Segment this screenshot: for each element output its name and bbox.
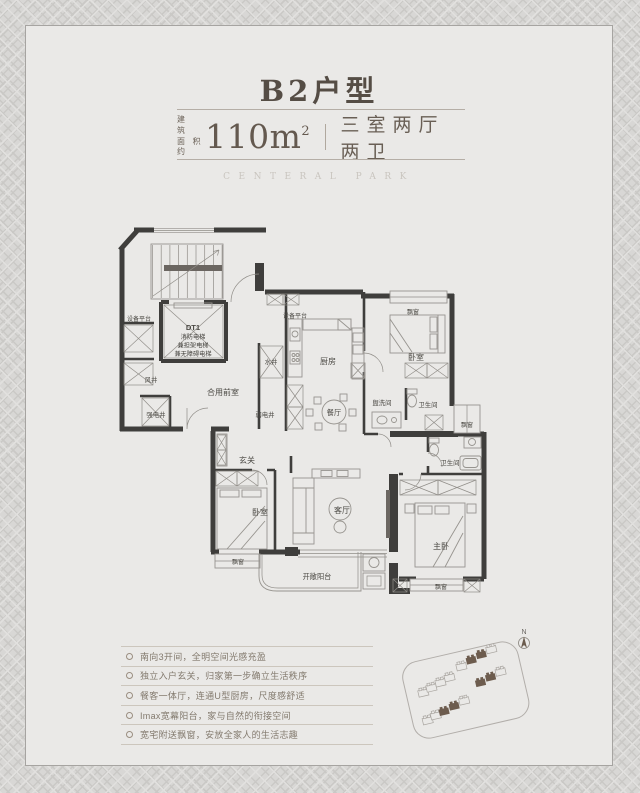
room-label: 飘窗 <box>461 421 473 429</box>
floor-plan-svg: 设备平台 DT1 消防电梯 兼担架电梯 兼无障碍电梯 风井 合用前室 强电井 弱… <box>114 223 516 618</box>
room-label: 卧室 <box>252 507 268 517</box>
room-label: 兼担架电梯 <box>178 342 209 350</box>
feature-item: 宽宅附送飘窗，安放全家人的生活志趣 <box>121 724 373 744</box>
vertical-divider <box>325 124 326 150</box>
bullet-icon <box>126 692 133 699</box>
feature-text: Imax宽幕阳台，家与自然的衔接空间 <box>140 709 291 722</box>
bullet-icon <box>126 653 133 660</box>
project-watermark: CENTERAL PARK <box>26 172 612 182</box>
feature-item: Imax宽幕阳台，家与自然的衔接空间 <box>121 705 373 725</box>
room-label: 餐厅 <box>327 408 341 417</box>
kitchen-counters <box>288 319 365 379</box>
room-label: 卧室 <box>408 352 424 362</box>
room-label: 开敞阳台 <box>303 572 332 581</box>
feature-text: 南向3开间，全明空间光感充盈 <box>140 650 266 663</box>
room-label: 卫生间 <box>418 400 437 409</box>
north-label: N <box>521 629 526 636</box>
bullet-icon <box>126 731 133 738</box>
room-label: 兼无障碍电梯 <box>174 350 211 358</box>
room-label: 飘窗 <box>407 308 419 316</box>
bedroom-top-furniture <box>390 315 445 353</box>
room-label: 强电井 <box>146 410 166 419</box>
master-wall-pier <box>389 474 398 552</box>
flyer-background: B2户型 建 筑 面积约 110m2 三室两厅两卫 CENTERAL PARK <box>0 0 640 793</box>
area-number: 110m <box>205 117 301 156</box>
room-label: 弱电井 <box>255 410 275 419</box>
feature-text: 独立入户玄关，归家第一步确立生活秩序 <box>140 669 307 682</box>
room-label: 主卧 <box>433 541 449 551</box>
divider-line-bottom <box>177 159 465 160</box>
area-label: 建 筑 面积约 <box>177 115 201 158</box>
room-label: 设备平台 <box>283 312 307 320</box>
north-indicator: N <box>519 629 530 649</box>
windows <box>154 228 387 557</box>
site-plan: N <box>393 623 543 748</box>
room-label: 客厅 <box>334 505 350 515</box>
room-label: 飘窗 <box>232 558 244 566</box>
room-label: 风井 <box>145 375 158 384</box>
master-furniture <box>405 503 476 567</box>
room-label: 卫生间 <box>440 458 459 467</box>
staircase <box>151 244 223 299</box>
floorplan-card: B2户型 建 筑 面积约 110m2 三室两厅两卫 CENTERAL PARK <box>25 25 613 766</box>
room-label: 水井 <box>265 357 278 366</box>
feature-text: 宽宅附送飘窗，安放全家人的生活志趣 <box>140 728 298 741</box>
page-title: B2户型 <box>26 68 612 110</box>
site-plan-svg: N <box>393 623 543 748</box>
feature-item: 南向3开间，全明空间光感充盈 <box>121 646 373 666</box>
tv-wall-unit <box>386 490 390 538</box>
living-wall-pier <box>285 547 298 556</box>
area-superscript: 2 <box>301 124 309 139</box>
room-label: 飘窗 <box>435 583 447 591</box>
room-layout-text: 三室两厅两卫 <box>340 110 465 164</box>
bullet-icon <box>126 672 133 679</box>
room-label: 厨房 <box>320 356 336 366</box>
site-boundary-group <box>400 639 533 742</box>
feature-list: 南向3开间，全明空间光感充盈 独立入户玄关，归家第一步确立生活秩序 餐客一体厅，… <box>121 646 373 745</box>
room-label: DT1 <box>186 323 201 332</box>
room-label: 合用前室 <box>207 387 239 397</box>
room-label: 设备平台 <box>127 315 151 323</box>
stair-wall-pier <box>255 263 264 291</box>
room-label: 消防电梯 <box>181 333 206 341</box>
area-label-line1: 建 筑 <box>177 115 201 137</box>
area-summary: 建 筑 面积约 110m2 三室两厅两卫 <box>177 114 465 159</box>
bullet-icon <box>126 712 133 719</box>
feature-item: 餐客一体厅，连通U型厨房，尺度感舒适 <box>121 685 373 705</box>
room-label: 盥洗间 <box>372 398 391 407</box>
floor-plan: 设备平台 DT1 消防电梯 兼担架电梯 兼无障碍电梯 风井 合用前室 强电井 弱… <box>114 223 516 618</box>
area-label-line2: 面积约 <box>177 137 201 159</box>
area-value: 110m2 <box>205 120 310 153</box>
site-buildings <box>409 642 513 725</box>
bedroom-left-furniture <box>217 488 267 549</box>
room-label: 玄关 <box>239 455 255 465</box>
feature-item: 独立入户玄关，归家第一步确立生活秩序 <box>121 666 373 686</box>
room-labels: 设备平台 DT1 消防电梯 兼担架电梯 兼无障碍电梯 风井 合用前室 强电井 弱… <box>127 308 473 591</box>
feature-text: 餐客一体厅，连通U型厨房，尺度感舒适 <box>140 689 305 702</box>
